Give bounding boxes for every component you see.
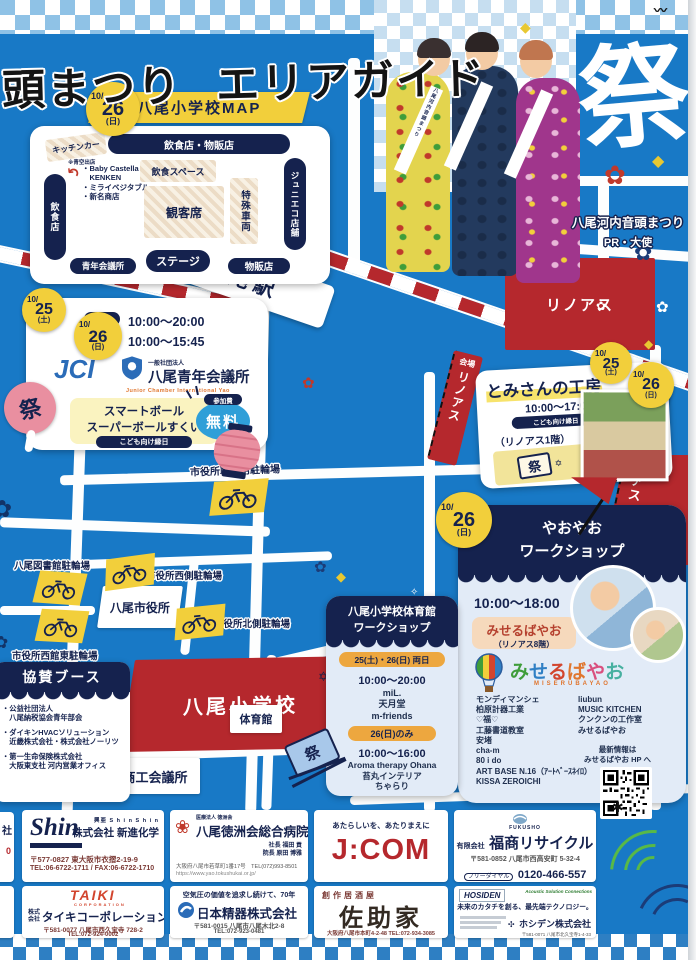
parking-label-west-annex: 市役所西館東駐輪場 — [12, 648, 98, 662]
taiki-name: タイキコーポレーション — [42, 909, 164, 925]
miserubayao-logo: みせるばやお — [510, 657, 624, 684]
building-gymnasium: 体育館 — [230, 705, 282, 733]
yaoyao-title-line1: やおやお — [458, 517, 686, 538]
date-badge-oct26: 10/26(日) — [628, 362, 674, 408]
date-badge-oct26: 10/26(日) — [74, 312, 122, 360]
shinshin-address: 〒577-0827 東大阪市衣摺2-19-9 — [30, 854, 138, 865]
sasukeya-address: 大阪府八尾市本町4-2-48 TEL:072-934-3085 — [314, 929, 448, 937]
gym-sunday-vendors: Aroma therapy Ohana苔丸インテリアちゃらり — [326, 760, 458, 792]
diamond-icon: ◆ — [652, 154, 664, 170]
date-badge-oct26: 10/26(日) — [436, 492, 492, 548]
sponsor-card-taiki: TAIKI CORPORATION 株式会社 タイキコーポレーション 〒581-… — [22, 886, 164, 938]
pr-caption-line2: PR・大使 — [560, 234, 696, 250]
jcom-tagline: あたらしいを、あたりまえに — [314, 820, 448, 831]
jci-fee-label-pill: 参加費 — [204, 394, 242, 405]
sponsor-card-nihonseiki: 空気圧の価値を追求し続けて、70年 日本精器株式会社 〒581-0015 八尾市… — [170, 886, 308, 938]
balloon-icon — [472, 653, 506, 695]
shinshin-tagline: 興亜 S h i n S h i n — [94, 816, 159, 824]
school-map-goods: 物販店 — [228, 258, 290, 274]
festival-area-guide-poster: 頭まつりエリアガイド 八尾河内音頭まつり 祭 八尾河内音頭まつり PR・大使 リ… — [0, 0, 696, 960]
sponsor-card-tokushukai: ❀ 医療法人 徳洲会 八尾徳洲会総合病院 社長 福田 貢 院長 原田 博雅 大阪… — [170, 810, 308, 882]
asterisk-icon: ✱ — [612, 800, 624, 814]
gym-workshop-card: 八尾小学校体育館 ワークショップ 25(土)・26(日) 両日 10:00～20… — [326, 596, 458, 796]
date-badge-oct25: 10/25(土) — [22, 288, 66, 332]
diamond-icon: ◆ — [644, 338, 653, 350]
nihonseiki-tel: TEL:072-923-0481 — [170, 929, 308, 935]
matsuri-brush-logo: 祭 — [573, 37, 694, 158]
parking-label-west: 市役所西側駐輪場 — [146, 568, 222, 582]
fukusho-name: 福商リサイクル — [489, 835, 593, 852]
page-edge — [688, 0, 696, 960]
school-map-restaurant: 飲食店 — [44, 174, 66, 260]
road — [0, 517, 270, 536]
tokushukai-name: 八尾徳洲会総合病院 — [196, 821, 308, 840]
hosiden-tagline: 未来のカタチを創る、最先端テクノロジー。 — [454, 901, 596, 911]
yaoyao-header: やおやお ワークショップ — [458, 505, 686, 575]
gym-bothdays-time: 10:00～20:00 — [326, 672, 458, 688]
fukusho-logo-icon — [512, 813, 528, 825]
bicycle-icon — [175, 604, 226, 641]
page-title-part2: エリアガイド — [215, 55, 486, 110]
bicycle-icon — [32, 570, 87, 605]
yaoyao-venue-name: みせるばやお — [472, 620, 576, 639]
fukusho-address: 〒581-0852 八尾市西高安町 5-32-4 — [454, 854, 596, 864]
fukusho-prefix: 有限会社 — [457, 843, 485, 850]
qr-code — [600, 767, 652, 819]
plum-blossom-icon: ✿ — [604, 162, 626, 188]
yaoyao-card: やおやお ワークショップ 10:00～18:00 みせるばやお （リノアス8階）… — [458, 505, 686, 803]
sponsor-card-edge: 社 0 — [0, 812, 14, 882]
yaoyao-kids-photo — [630, 607, 686, 663]
taiki-logo: TAIKI — [70, 887, 116, 903]
hosiden-name: ホシデン株式会社 — [519, 919, 591, 929]
school-map-jc-room: 青年会議所 — [70, 258, 136, 274]
date-badge-oct25: 10/25(土) — [590, 342, 632, 384]
parking-label-library: 八尾図書館駐輪場 — [14, 558, 90, 572]
hosiden-mark-icon: ✣ — [508, 920, 515, 929]
seigaiha-wave-decoration — [636, 876, 696, 926]
diamond-icon: ◆ — [520, 20, 531, 34]
school-map-stage: ステージ — [146, 250, 210, 272]
radio-wave-decoration — [600, 820, 690, 870]
school-map-food-space: 飲食スペース — [140, 160, 216, 182]
tokushukai-flower-logo: ❀ — [175, 818, 190, 836]
diamond-icon: ◆ — [336, 570, 346, 583]
jci-kids-badge: こども向け縁日 — [96, 436, 192, 448]
sponsor-card-edge2 — [0, 886, 14, 938]
miserubayao-logo-sub: MISERUBAYAO — [534, 681, 611, 687]
tokushukai-url: https://www.yao.tokushukai.or.jp/ — [176, 871, 256, 877]
pr-caption-line1: 八尾河内音頭まつり — [560, 212, 696, 231]
taiki-logo-sub: CORPORATION — [74, 902, 126, 907]
parking-label-north: 市役所北側駐輪場 — [214, 616, 290, 630]
asterisk-icon: 〰 — [654, 4, 667, 17]
building-city-hall: 八尾市役所 — [97, 586, 183, 628]
sponsor-booth-header: 協賛ブース — [0, 662, 130, 692]
gym-title-line2: ワークショップ — [326, 619, 458, 635]
shinshin-name: 株式会社 新進化学 — [72, 825, 159, 840]
sponsor-booth-card: 協賛ブース ・公益社団法人 八尾納税協会青年部会 ・ダイキンHVACソリューショ… — [0, 662, 130, 802]
bicycle-icon — [35, 609, 90, 643]
fukusho-tel-label: フリーダイヤル — [464, 873, 514, 881]
gym-sunday-badge: 26(日)のみ — [348, 726, 436, 741]
sponsor-card-shinshin: Shin 興亜 S h i n S h i n 株式会社 新進化学 〒577-0… — [22, 810, 164, 882]
yaoyao-vendor-list-right: liubunMUSIC KITCHENクンクンの工作室みせるばやお — [578, 695, 642, 736]
jci-day25-time: 10:00～20:00 — [128, 311, 204, 330]
nihonseiki-logo-icon — [178, 902, 194, 918]
sponsor-booth-items: ・公益社団法人 八尾納税協会青年部会 ・ダイキンHVACソリューション 近畿株式… — [2, 704, 119, 771]
gym-bothdays-badge: 25(土)・26(日) 両日 — [339, 652, 445, 667]
bicycle-icon — [209, 478, 269, 516]
school-map-junieco: ジュニエコ店舗 — [284, 158, 306, 250]
taiki-prefix: 株式会社 — [28, 910, 40, 923]
top-checker-border — [0, 0, 696, 34]
hosiden-products-bars — [460, 916, 506, 929]
plum-blossom-icon: ✿ — [596, 300, 606, 312]
sponsor-card-fukusho: FUKUSHO 有限会社 福商リサイクル 〒581-0852 八尾市西高安町 5… — [454, 810, 596, 882]
gym-title-line1: 八尾小学校体育館 — [326, 603, 458, 619]
hosiden-corner-text: Acoustic Solution Connections — [525, 889, 592, 894]
venue-flag-linoas: 会場 リノアス — [427, 350, 483, 466]
yaoyao-info: 最新情報はみせるばやお HP へ — [584, 745, 651, 765]
sponsor-card-jcom: あたらしいを、あたりまえに J:COM — [314, 810, 448, 882]
yaoyao-title-line2: ワークショップ — [458, 540, 686, 561]
lantern-icon — [210, 421, 263, 481]
jci-day26-time: 10:00～15:45 — [128, 331, 204, 350]
tokushukai-address: 大阪府八尾市若草町1番17号 TEL(072)993-8501 — [176, 862, 297, 870]
jci-logo: JCI — [54, 354, 94, 385]
school-map-card: 飲食店・物販店 キッチンカー ※青空出店 ↶ ・Baby Castella KE… — [30, 126, 330, 284]
plum-blossom-icon: ✿ — [314, 560, 327, 575]
jci-shield-icon — [122, 356, 142, 380]
sparkle-icon: ✡ — [554, 457, 562, 469]
ambassador-figure-right — [516, 78, 580, 283]
plum-blossom-icon: ✿ — [0, 498, 12, 522]
jcom-logo: J:COM — [314, 834, 448, 867]
shinshin-tel: TEL:06-6722-1711 / FAX:06-6722-1710 — [30, 865, 154, 872]
tokushukai-person2: 院長 原田 博雅 — [263, 848, 302, 857]
sponsor-card-hosiden: HOSIDEN Acoustic Solution Connections 未来… — [454, 886, 596, 938]
fukusho-logo-text: FUKUSHO — [454, 825, 596, 831]
gym-bothdays-vendors: miL.天月堂m-friends — [326, 688, 458, 722]
plum-blossom-icon: ✿ — [302, 376, 315, 391]
sasukeya-name: 佐助家 — [314, 898, 448, 933]
plum-blossom-icon: ✿ — [0, 634, 8, 651]
taiki-tel: TEL:072-924-0002 — [22, 932, 164, 938]
yaoyao-venue-pill: みせるばやお （リノアス8階） — [472, 617, 576, 649]
school-map-food-goods-pill: 飲食店・物販店 — [108, 134, 290, 154]
nihonseiki-tagline: 空気圧の価値を追求し続けて、70年 — [170, 890, 308, 900]
plum-blossom-icon: ✿ — [656, 300, 669, 315]
yaoyao-time: 10:00～18:00 — [474, 593, 560, 613]
yaoyao-venue-floor: （リノアス8階） — [472, 639, 576, 650]
sponsor-card-sasukeya: 創作居酒屋 佐助家 大阪府八尾市本町4-2-48 TEL:072-934-308… — [314, 886, 448, 938]
fukusho-tel: 0120-466-557 — [518, 869, 587, 881]
yaoyao-vendor-list-left: モンディマンシェ柏原計器工業♡福♡ 工藤書道教室安堵cha-m 80 i doA… — [476, 695, 592, 787]
school-map-special-vehicle: 特殊車両 — [230, 178, 258, 244]
school-map-audience: 観客席 — [144, 186, 224, 238]
gym-workshop-header: 八尾小学校体育館 ワークショップ — [326, 596, 458, 640]
page-title-part1: 頭まつり — [2, 63, 183, 116]
pr-caption: 八尾河内音頭まつり PR・大使 — [560, 212, 696, 250]
page-title: 頭まつりエリアガイド — [1, 44, 486, 119]
tokushukai-org: 医療法人 徳洲会 — [196, 814, 232, 821]
jci-org-name: 八尾青年会議所 — [148, 366, 250, 387]
mikoshi-icon: 祭 — [516, 451, 552, 479]
